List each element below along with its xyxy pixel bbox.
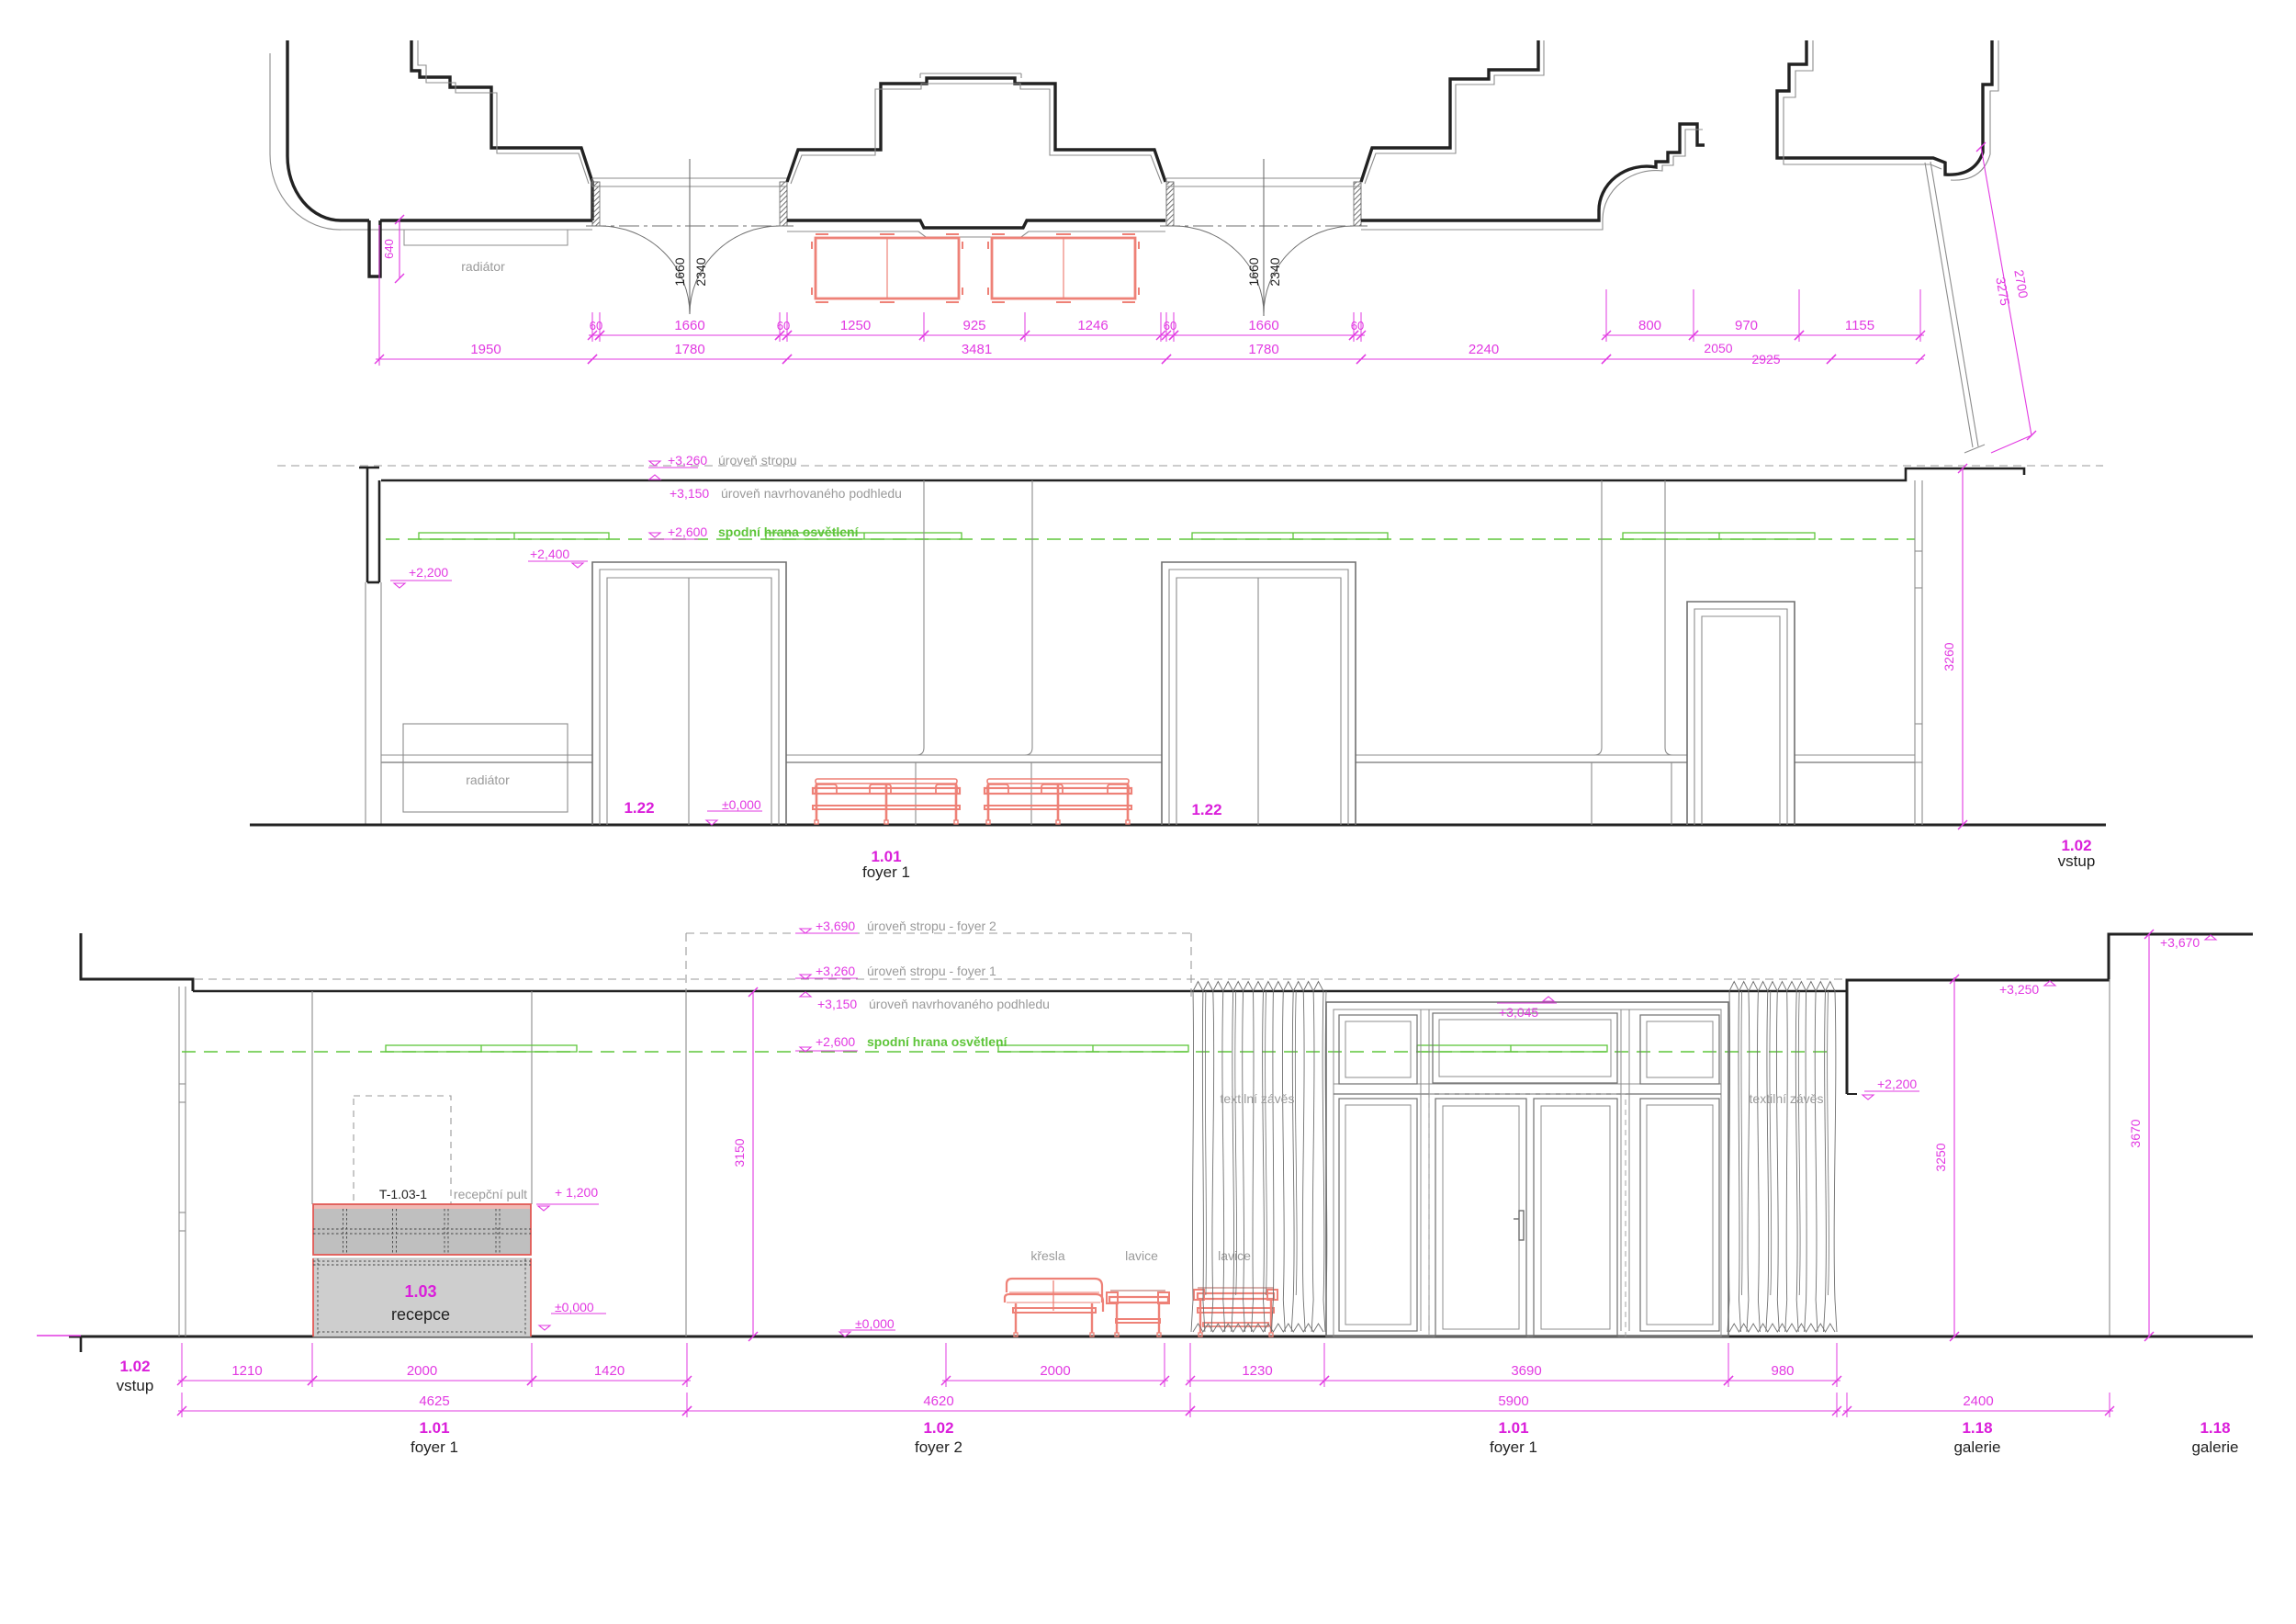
svg-text:úroveň navrhovaného podhledu: úroveň navrhovaného podhledu <box>869 997 1050 1011</box>
svg-text:foyer 1: foyer 1 <box>862 863 910 881</box>
svg-text:2050: 2050 <box>1704 341 1732 355</box>
svg-text:+2,200: +2,200 <box>409 565 448 580</box>
svg-text:+3,045: +3,045 <box>1499 1005 1538 1020</box>
svg-text:3260: 3260 <box>1941 642 1956 671</box>
svg-text:lavice: lavice <box>1218 1248 1251 1263</box>
svg-text:60: 60 <box>590 319 602 333</box>
svg-text:3250: 3250 <box>1933 1143 1948 1171</box>
svg-text:úroveň stropu - foyer 2: úroveň stropu - foyer 2 <box>867 919 996 933</box>
svg-text:+3,150: +3,150 <box>670 486 709 501</box>
svg-text:úroveň stropu - foyer 1: úroveň stropu - foyer 1 <box>867 964 996 978</box>
svg-text:+2,400: +2,400 <box>530 547 569 561</box>
svg-text:+2,200: +2,200 <box>1877 1077 1917 1091</box>
svg-text:2340: 2340 <box>693 257 708 286</box>
svg-text:±0,000: ±0,000 <box>555 1300 594 1314</box>
svg-text:1780: 1780 <box>674 342 704 357</box>
svg-text:4620: 4620 <box>923 1393 953 1409</box>
svg-text:+3,250: +3,250 <box>1999 982 2039 997</box>
svg-text:1.01: 1.01 <box>1498 1419 1528 1437</box>
svg-text:1660: 1660 <box>672 257 687 286</box>
svg-text:recepční pult: recepční pult <box>454 1187 527 1201</box>
svg-text:křesla: křesla <box>1030 1248 1065 1263</box>
svg-text:2400: 2400 <box>1963 1393 1993 1409</box>
svg-text:galerie: galerie <box>1953 1438 2000 1456</box>
svg-text:+3,260: +3,260 <box>816 964 855 978</box>
svg-text:+2,600: +2,600 <box>816 1034 855 1049</box>
svg-text:2925: 2925 <box>1751 352 1780 367</box>
svg-text:úroveň navrhovaného podhledu: úroveň navrhovaného podhledu <box>721 486 902 501</box>
svg-text:800: 800 <box>1638 318 1661 333</box>
svg-text:1780: 1780 <box>1248 342 1278 357</box>
svg-text:1660: 1660 <box>1248 318 1278 333</box>
svg-text:+3,670: +3,670 <box>2160 935 2200 950</box>
svg-text:1210: 1210 <box>231 1363 262 1379</box>
svg-text:2340: 2340 <box>1267 257 1282 286</box>
svg-text:lavice: lavice <box>1125 1248 1158 1263</box>
svg-text:1660: 1660 <box>674 318 704 333</box>
svg-text:1660: 1660 <box>1246 257 1261 286</box>
svg-text:T-1.03-1: T-1.03-1 <box>379 1187 427 1201</box>
svg-text:textilní závěs: textilní závěs <box>1750 1091 1824 1106</box>
svg-text:2000: 2000 <box>1040 1363 1070 1379</box>
svg-text:1.02: 1.02 <box>119 1358 150 1375</box>
svg-text:foyer 1: foyer 1 <box>411 1438 458 1456</box>
svg-text:úroveň stropu: úroveň stropu <box>718 453 797 468</box>
svg-text:4625: 4625 <box>419 1393 449 1409</box>
svg-text:1.03: 1.03 <box>404 1282 436 1301</box>
svg-text:vstup: vstup <box>2058 852 2096 870</box>
svg-text:1.18: 1.18 <box>1962 1419 1992 1437</box>
svg-text:recepce: recepce <box>391 1305 450 1324</box>
svg-text:2000: 2000 <box>407 1363 437 1379</box>
svg-text:60: 60 <box>777 319 790 333</box>
svg-text:1.01: 1.01 <box>419 1419 449 1437</box>
svg-text:1.22: 1.22 <box>1191 801 1221 818</box>
svg-text:1950: 1950 <box>470 342 501 357</box>
svg-text:1420: 1420 <box>594 1363 625 1379</box>
svg-text:1250: 1250 <box>840 318 871 333</box>
svg-text:1.18: 1.18 <box>2200 1419 2230 1437</box>
svg-text:3150: 3150 <box>732 1138 747 1167</box>
svg-text:1.02: 1.02 <box>923 1419 953 1437</box>
svg-text:60: 60 <box>1351 319 1364 333</box>
svg-text:+2,600: +2,600 <box>668 524 707 539</box>
svg-text:galerie: galerie <box>2191 1438 2238 1456</box>
svg-text:radiátor: radiátor <box>461 259 505 274</box>
svg-text:vstup: vstup <box>117 1377 154 1394</box>
svg-text:spodní hrana osvětlení: spodní hrana osvětlení <box>867 1034 1008 1049</box>
svg-text:radiátor: radiátor <box>466 773 510 787</box>
svg-text:3481: 3481 <box>962 342 992 357</box>
svg-text:±0,000: ±0,000 <box>855 1316 895 1331</box>
svg-text:foyer 1: foyer 1 <box>1490 1438 1537 1456</box>
svg-text:1.22: 1.22 <box>624 799 654 817</box>
svg-text:2240: 2240 <box>1469 342 1499 357</box>
svg-text:+3,260: +3,260 <box>668 453 707 468</box>
svg-text:925: 925 <box>962 318 985 333</box>
svg-text:textilní závěs: textilní závěs <box>1221 1091 1295 1106</box>
svg-text:+3,150: +3,150 <box>817 997 857 1011</box>
svg-text:5900: 5900 <box>1498 1393 1528 1409</box>
svg-text:foyer 2: foyer 2 <box>915 1438 962 1456</box>
svg-text:640: 640 <box>382 239 396 259</box>
svg-text:+3,690: +3,690 <box>816 919 855 933</box>
svg-text:970: 970 <box>1735 318 1758 333</box>
svg-text:1230: 1230 <box>1242 1363 1272 1379</box>
svg-text:980: 980 <box>1771 1363 1794 1379</box>
svg-text:1155: 1155 <box>1845 318 1874 333</box>
svg-text:+ 1,200: + 1,200 <box>555 1185 598 1200</box>
svg-text:3690: 3690 <box>1511 1363 1541 1379</box>
svg-text:1246: 1246 <box>1077 318 1108 333</box>
svg-text:±0,000: ±0,000 <box>722 797 761 812</box>
svg-text:spodní hrana osvětlení: spodní hrana osvětlení <box>718 524 860 539</box>
svg-text:3670: 3670 <box>2128 1119 2143 1147</box>
svg-text:60: 60 <box>1164 319 1176 333</box>
